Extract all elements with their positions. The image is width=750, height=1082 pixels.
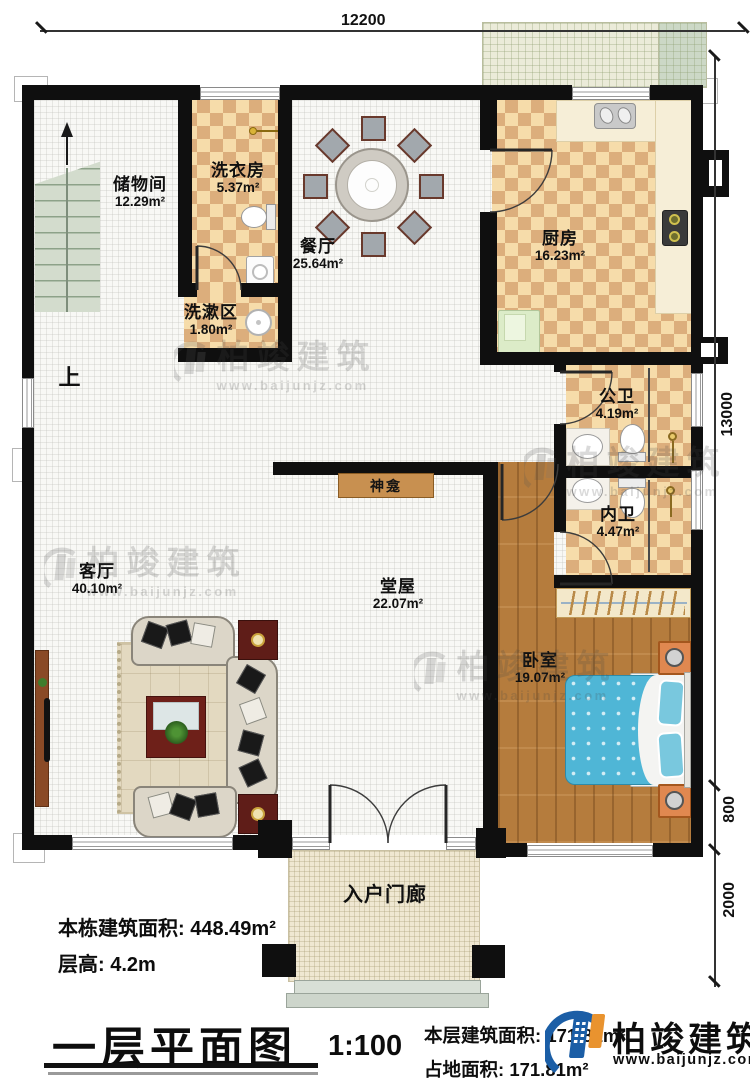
title-rule-thin	[48, 1072, 318, 1075]
floor-height-value: 4.2m	[110, 954, 156, 976]
laundry-door-arc	[197, 246, 241, 290]
room-label-public-bath: 公卫4.19m²	[596, 388, 639, 421]
entry-door-arc	[330, 785, 388, 843]
inner-bath-door-arc	[560, 532, 612, 584]
ground-area-label: 占地面积:	[424, 1059, 504, 1080]
dimension-right-low: 2000	[718, 882, 742, 918]
room-label-inner-bath: 内卫4.47m²	[597, 506, 640, 539]
floor-area-label: 本层建筑面积:	[424, 1025, 541, 1046]
floorplan-page: { "plan": { "dim_top": "12200", "dim_rig…	[0, 0, 750, 1082]
room-label-laundry: 洗衣房5.37m²	[211, 162, 265, 195]
corridor-door-arc	[502, 464, 558, 520]
room-label-living: 客厅40.10m²	[72, 563, 122, 596]
room-label-hall: 堂屋22.07m²	[373, 578, 423, 611]
room-label-wash: 洗漱区1.80m²	[184, 304, 238, 337]
dimension-top-label: 12200	[338, 12, 389, 30]
total-area-line: 本栋建筑面积: 448.49m²	[58, 912, 276, 941]
brand-url: www.baijunjz.com	[613, 1052, 750, 1068]
brand-logo-icon	[545, 1008, 607, 1074]
floor-height-line: 层高: 4.2m	[58, 948, 156, 977]
room-label-kitchen: 厨房16.23m²	[535, 230, 585, 263]
room-label-dining: 餐厅25.64m²	[293, 238, 343, 271]
dimension-right-mid: 800	[718, 796, 742, 823]
total-area-value: 448.49m²	[190, 918, 276, 940]
room-label-bedroom: 卧室19.07m²	[515, 652, 565, 685]
room-label-porch: 入户门廊	[343, 885, 427, 906]
total-area-label: 本栋建筑面积:	[58, 918, 185, 940]
title-rule-thick	[44, 1063, 318, 1068]
kitchen-door-arc	[490, 150, 552, 212]
dimension-right-main: 13000	[716, 392, 740, 437]
entry-door-arc	[388, 785, 446, 843]
top-dimension-line	[40, 30, 745, 32]
plan-scale: 1:100	[328, 1030, 402, 1063]
floor-height-label: 层高:	[58, 954, 105, 976]
room-label-storage: 储物间12.29m²	[113, 176, 167, 209]
stairs-up-label: 上	[58, 366, 81, 389]
